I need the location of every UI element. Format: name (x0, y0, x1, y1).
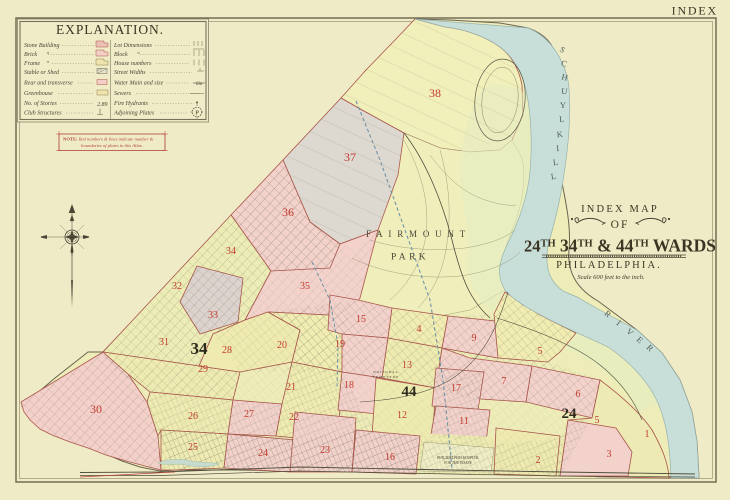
svg-text:Stable or Shed: Stable or Shed (24, 70, 60, 76)
svg-text:15: 15 (356, 314, 366, 325)
svg-text:33: 33 (208, 310, 218, 321)
svg-text:44: 44 (402, 384, 418, 400)
svg-text:35: 35 (300, 281, 310, 292)
svg-text:31: 31 (159, 337, 169, 348)
svg-text:34: 34 (191, 339, 209, 358)
svg-text:2: 2 (536, 455, 541, 466)
svg-text:25: 25 (188, 442, 198, 453)
svg-text:FAIRMOUNT: FAIRMOUNT (366, 229, 471, 239)
svg-text:2.89: 2.89 (97, 102, 108, 108)
svg-text:OF: OF (611, 219, 630, 231)
svg-text:4: 4 (417, 324, 422, 335)
svg-text:24: 24 (258, 448, 268, 459)
svg-text:INDEX MAP: INDEX MAP (581, 204, 659, 215)
svg-text:Club Structures: Club Structures (24, 111, 62, 117)
svg-text:NOTE: Red numbers & lines indi: NOTE: Red numbers & lines indicate numbe… (63, 137, 154, 142)
svg-text:EXPLANATION.: EXPLANATION. (56, 22, 164, 37)
svg-text:Water Main and size: Water Main and size (114, 81, 164, 87)
svg-text:6in: 6in (196, 82, 203, 87)
svg-text:20: 20 (277, 340, 287, 351)
svg-text:Y: Y (560, 100, 566, 110)
svg-text:Street Widths: Street Widths (114, 70, 146, 76)
svg-text:NATIONAL: NATIONAL (373, 370, 399, 374)
svg-text:19: 19 (335, 339, 345, 350)
svg-text:9: 9 (472, 333, 477, 344)
svg-text:38: 38 (429, 86, 441, 100)
svg-text:16: 16 (385, 452, 395, 463)
svg-text:22: 22 (289, 412, 299, 423)
svg-text:30: 30 (90, 402, 102, 416)
svg-text:PARK: PARK (391, 253, 429, 263)
svg-text:Fire Hydrants: Fire Hydrants (113, 101, 149, 107)
svg-text:24: 24 (562, 406, 578, 422)
svg-text:Brick “: Brick “ (24, 51, 50, 58)
svg-text:6: 6 (576, 389, 581, 400)
svg-text:34: 34 (226, 246, 236, 257)
svg-text:18: 18 (344, 380, 354, 391)
svg-text:Rear and transverse: Rear and transverse (23, 81, 73, 87)
svg-text:boundaries of plates in this A: boundaries of plates in this Atlas. (81, 143, 143, 148)
svg-text:Stone Building: Stone Building (24, 43, 60, 49)
svg-text:Frame “: Frame “ (23, 60, 50, 67)
svg-text:Sewers: Sewers (114, 91, 132, 97)
svg-text:36: 36 (282, 205, 294, 219)
svg-text:Scale 600 feet to the inch.: Scale 600 feet to the inch. (577, 274, 645, 281)
svg-text:Greenhouse: Greenhouse (24, 91, 53, 97)
svg-text:Lot Dimensions: Lot Dimensions (113, 43, 153, 49)
svg-text:27: 27 (244, 409, 254, 420)
svg-text:29: 29 (198, 364, 208, 375)
svg-text:House numbers: House numbers (113, 61, 152, 67)
svg-text:P: P (195, 110, 199, 117)
svg-text:7: 7 (502, 376, 507, 387)
svg-text:12: 12 (397, 410, 407, 421)
svg-text:37: 37 (344, 150, 356, 164)
svg-text:21: 21 (286, 382, 296, 393)
svg-text:13: 13 (402, 360, 412, 371)
svg-text:INDEX: INDEX (672, 4, 718, 18)
svg-text:32: 32 (172, 281, 182, 292)
svg-text:3: 3 (607, 449, 612, 460)
svg-text:Block “: Block “ (114, 51, 141, 58)
svg-text:17: 17 (451, 383, 461, 394)
svg-text:5: 5 (595, 415, 600, 426)
svg-text:11: 11 (459, 416, 469, 427)
svg-text:1: 1 (645, 429, 650, 440)
svg-text:Adjoining Plates: Adjoining Plates (113, 111, 155, 117)
svg-text:No. of Stories: No. of Stories (23, 100, 58, 107)
svg-text:5: 5 (538, 346, 543, 357)
svg-text:26: 26 (188, 411, 198, 422)
svg-text:28: 28 (222, 345, 232, 356)
svg-text:U: U (561, 86, 568, 97)
svg-text:PHILADELPHIA.: PHILADELPHIA. (556, 260, 662, 271)
svg-text:23: 23 (320, 445, 330, 456)
svg-text:L: L (559, 114, 565, 124)
